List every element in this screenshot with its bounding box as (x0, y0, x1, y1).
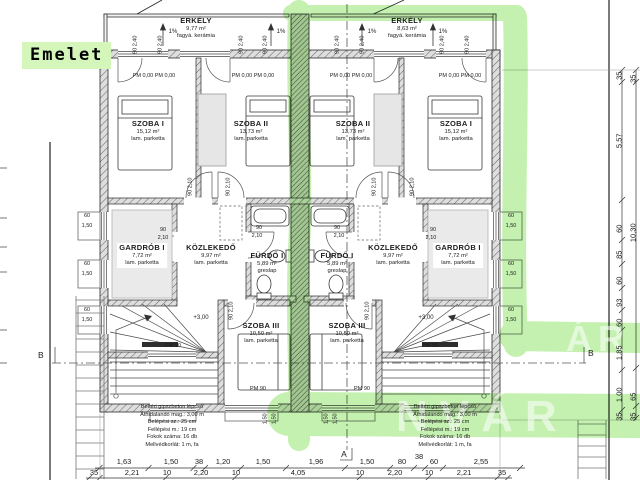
floor-title-emelet: Emelet (22, 42, 111, 69)
dim-value: 2,55 (474, 458, 489, 466)
dim-value: 10 (163, 469, 171, 477)
window-width-label: 60 (508, 214, 514, 220)
window-size-label: 90 2,40 (263, 23, 269, 67)
window-size-label: 90 2,40 (335, 23, 341, 67)
parapet-label: PM 90 (165, 344, 181, 350)
door-size-label: 90 2,10 (410, 165, 416, 209)
dim-value: 38 (195, 458, 203, 466)
door-width-label: 90 (334, 226, 340, 232)
dim-value: 2,21 (457, 469, 472, 477)
window-size-label: 90 2,40 (360, 23, 366, 67)
window-sill-label: 1,50 (272, 397, 278, 441)
room-szoba3-left: SZOBA III 10,50 m² lam. parketta (242, 321, 279, 346)
door-size-label: 90 2,10 (372, 165, 378, 209)
room-szoba3-right: SZOBA III 10,50 m² lam. parketta (328, 321, 365, 346)
window-size-label: 90 2,40 (158, 23, 164, 67)
room-erkely-left: ERKÉLY 9,77 m² fagyá. kerámia (177, 16, 215, 41)
dim-value: 35 (615, 395, 623, 439)
window-sill-label: 1,50 (506, 318, 517, 324)
window-sill-label: 1,50 (82, 318, 93, 324)
dim-value: 1,63 (117, 458, 132, 466)
room-furdo-right: FÜRDŐ I 5,89 m² greslap (321, 251, 354, 276)
dim-value: 4,05 (291, 469, 306, 477)
door-size-label: 90 2,10 (226, 165, 232, 209)
slope-label: 1% (277, 29, 286, 35)
window-sill-label: 1,50 (263, 397, 269, 441)
door-height-label: 2,10 (426, 236, 437, 242)
parapet-label: PM 90 (354, 387, 370, 393)
dim-value: 10,30 (629, 211, 637, 255)
dim-value: 5,57 (615, 119, 623, 163)
section-marker-a: A (341, 450, 347, 459)
window-width-label: 60 (84, 308, 90, 314)
window-width-label: 60 (84, 214, 90, 220)
room-furdo-left: FÜRDŐ I 5,89 m² greslap (251, 251, 284, 276)
threshold-label: PM 0,00 PM 0,00 (133, 74, 176, 80)
dim-value: 38 (415, 453, 423, 461)
threshold-label: PM 0,00 PM 0,00 (439, 74, 482, 80)
window-sill-label: 1,50 (82, 224, 93, 230)
window-size-label: 90 2,40 (133, 23, 139, 67)
dim-value: 1,96 (309, 458, 324, 466)
parapet-label: PM 90 (422, 344, 438, 350)
dim-value: 2,20 (388, 469, 403, 477)
party-wall (291, 14, 309, 412)
room-szoba1-left: SZOBA I 15,12 m² lam. parketta (131, 119, 165, 144)
door-height-label: 2,10 (158, 236, 169, 242)
threshold-label: PM 0,00 PM 0,00 (232, 74, 275, 80)
window-sill-label: 1,50 (506, 224, 517, 230)
threshold-label: PM 0,00 PM 0,00 (330, 74, 373, 80)
dim-value: 1,50 (256, 458, 271, 466)
room-szoba1-right: SZOBA I 15,12 m² lam. parketta (439, 119, 473, 144)
window-width-label: 60 (84, 262, 90, 268)
room-kozlekedo-right: KÖZLEKEDŐ 9,97 m² lam. parketta (368, 243, 418, 268)
window-sill-label: 1,50 (506, 272, 517, 278)
door-height-label: 2,10 (252, 234, 263, 240)
room-gardrob-left: GARDRÓB I 7,72 m² lam. parketta (117, 243, 167, 268)
door-size-label: 90 2,10 (188, 165, 194, 209)
dim-value: 1,50 (164, 458, 179, 466)
door-size-label: 90 2,10 (365, 289, 371, 333)
dim-value: 35 (90, 469, 98, 477)
dim-value: 80 (398, 458, 406, 466)
stair-note-right: Beltéri gipszbeton lépcső Áthidalandó ma… (380, 404, 510, 449)
dim-value: 2,20 (194, 469, 209, 477)
dim-value: 35 (615, 54, 623, 98)
dim-value: 35 (629, 395, 637, 439)
room-erkely-right: ERKÉLY 8,63 m² fagyá. kerámia (388, 16, 426, 41)
window-sill-label: 1,50 (333, 397, 339, 441)
level-label: +3,00 (193, 315, 208, 321)
dim-value: 60 (430, 458, 438, 466)
door-size-label: 90 2,10 (229, 289, 235, 333)
window-sill-label: 1,50 (82, 272, 93, 278)
external-stair-right (578, 420, 606, 479)
parapet-label: PM 90 (250, 387, 266, 393)
room-kozlekedo-left: KÖZLEKEDŐ 9,97 m² lam. parketta (186, 243, 236, 268)
window-width-label: 60 (508, 262, 514, 268)
dim-value: 10 (232, 469, 240, 477)
slope-label: 1% (368, 29, 377, 35)
dim-value: 10 (425, 469, 433, 477)
window-width-label: 60 (508, 308, 514, 314)
room-gardrob-right: GARDRÓB I 7,72 m² lam. parketta (433, 243, 483, 268)
window-size-label: 90 2,40 (440, 23, 446, 67)
section-marker-b-right: B (588, 349, 594, 358)
dim-value: 1,50 (360, 458, 375, 466)
window-size-label: 90 2,40 (239, 23, 245, 67)
stair-note-left: Beltéri gipszbeton lépcső Áthidalandó ma… (107, 404, 237, 449)
dim-value: 2,21 (125, 469, 140, 477)
room-szoba2-left: SZOBA II 13,73 m² lam. parketta (234, 119, 269, 144)
level-label: +3,00 (418, 315, 433, 321)
floor-plan-page: NVÁR ÁR Emelet ERKÉLY 9,77 m² fagyá. ker… (0, 0, 640, 480)
dim-value: 10 (356, 469, 364, 477)
slope-label: 1% (169, 29, 178, 35)
door-width-label: 90 (430, 228, 436, 234)
window-sill-label: 1,50 (324, 397, 330, 441)
dim-value: 35 (629, 57, 637, 101)
dim-value: 35 (498, 469, 506, 477)
door-height-label: 2,10 (334, 234, 345, 240)
section-marker-b-left: B (38, 351, 44, 360)
floor-plan-drawing (0, 0, 640, 480)
window-size-label: 90 2,40 (465, 23, 471, 67)
room-szoba2-right: SZOBA II 13,73 m² lam. parketta (336, 119, 371, 144)
dim-value: 1,20 (216, 458, 231, 466)
door-width-label: 90 (256, 226, 262, 232)
door-width-label: 90 (160, 228, 166, 234)
stairs-right (382, 304, 490, 398)
dim-value: 1,85 (615, 331, 623, 375)
